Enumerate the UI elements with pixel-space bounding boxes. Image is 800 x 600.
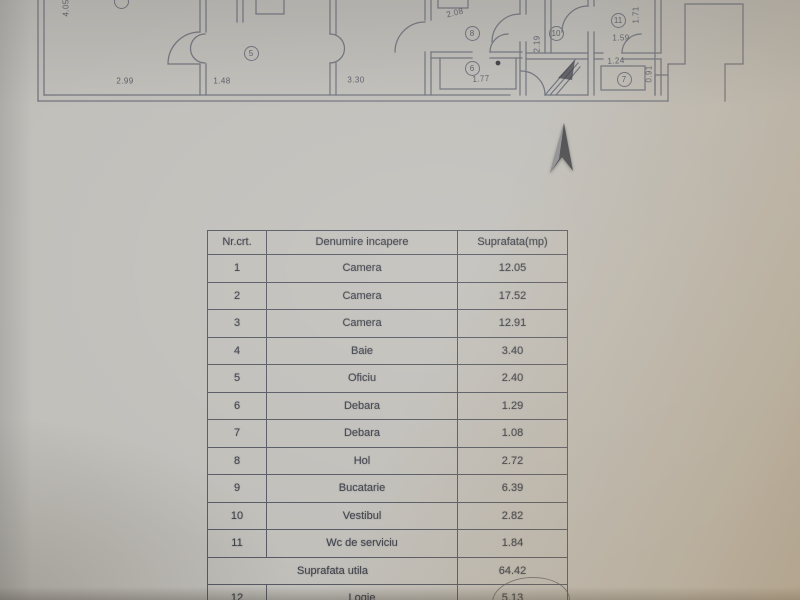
table-cell: 2 <box>208 282 267 310</box>
table-cell: 64.42 <box>458 557 568 585</box>
table-cell: 2.72 <box>458 447 568 475</box>
table-cell: Debara <box>267 392 458 420</box>
room-number <box>114 0 129 9</box>
table-row: 2Camera17.52 <box>208 282 568 310</box>
room-number: 11 <box>611 13 626 28</box>
north-arrow-icon <box>545 118 581 180</box>
table-row: 10Vestibul2.82 <box>208 502 568 530</box>
table-cell: 6.39 <box>458 475 568 503</box>
header-nr: Nr.crt. <box>208 231 267 255</box>
table-row: Suprafata utila64.42 <box>208 557 568 585</box>
table-cell: 12.05 <box>458 255 568 283</box>
table-cell: 7 <box>208 420 267 448</box>
table-row: 1Camera12.05 <box>208 255 568 283</box>
room-number: 7 <box>617 72 632 87</box>
dimension-label: 2.19 <box>533 35 542 52</box>
table-cell: 4 <box>208 337 267 365</box>
table-cell: Baie <box>267 337 458 365</box>
table-cell: 3.40 <box>458 337 568 365</box>
header-name: Denumire incapere <box>267 231 458 255</box>
dimension-label: 1.24 <box>607 56 625 66</box>
table-cell: 3 <box>208 310 267 338</box>
table-cell: Debara <box>267 420 458 448</box>
table-cell: 2.82 <box>458 502 568 530</box>
table-cell: 9 <box>208 475 267 503</box>
table-cell: 6 <box>208 392 267 420</box>
table-row: 12Logie5.13 <box>208 585 568 600</box>
table-row: 9Bucatarie6.39 <box>208 475 568 503</box>
table-cell: 2.40 <box>458 365 568 393</box>
table-cell: Hol <box>267 447 458 475</box>
table-header: Nr.crt. Denumire incapere Suprafata(mp) <box>208 231 568 255</box>
table-cell: Oficiu <box>267 365 458 393</box>
table-cell: 1.08 <box>458 420 568 448</box>
table-cell: Camera <box>267 282 458 310</box>
table-cell: 12.91 <box>458 310 568 338</box>
table-cell: Bucatarie <box>267 475 458 503</box>
table-cell: 1.29 <box>458 392 568 420</box>
dimension-label: 1.59 <box>612 34 629 43</box>
table-cell: 1.84 <box>458 530 568 558</box>
scanned-floor-plan-document: 2.991.483.301.772.081.591.244.051.712.19… <box>0 0 800 600</box>
table-cell: 17.52 <box>458 282 568 310</box>
table-cell: Logie <box>267 585 458 600</box>
table-cell: 10 <box>208 502 267 530</box>
dimension-label: 0.91 <box>645 65 654 82</box>
table-row: 7Debara1.08 <box>208 420 568 448</box>
table-cell: 11 <box>208 530 267 558</box>
floor-plan-drawing <box>0 0 800 200</box>
table-cell: 8 <box>208 447 267 475</box>
dimension-label: 4.05 <box>62 0 71 17</box>
header-area: Suprafata(mp) <box>458 231 568 255</box>
dimension-label: 1.71 <box>632 6 641 23</box>
room-number: 5 <box>244 46 259 61</box>
table-row: 5Oficiu2.40 <box>208 365 568 393</box>
dimension-label: 2.99 <box>116 77 133 86</box>
dimension-label: 3.30 <box>347 76 364 85</box>
table-row: 6Debara1.29 <box>208 392 568 420</box>
table-cell: 5.13 <box>458 585 568 600</box>
dimension-label: 1.48 <box>213 77 230 86</box>
room-number: 8 <box>465 26 480 41</box>
table-cell: 1 <box>208 255 267 283</box>
table-cell: Vestibul <box>267 502 458 530</box>
table-cell: Wc de serviciu <box>267 530 458 558</box>
table-row: 11Wc de serviciu1.84 <box>208 530 568 558</box>
table-cell: 5 <box>208 365 267 393</box>
table-row: 8Hol2.72 <box>208 447 568 475</box>
table-row: 4Baie3.40 <box>208 337 568 365</box>
table-cell: Suprafata utila <box>208 557 458 585</box>
table-cell: Camera <box>267 310 458 338</box>
room-number: 6 <box>465 61 480 76</box>
table-cell: Camera <box>267 255 458 283</box>
table-row: 3Camera12.91 <box>208 310 568 338</box>
room-number: 10 <box>549 26 564 41</box>
room-area-table: Nr.crt. Denumire incapere Suprafata(mp) … <box>207 230 568 600</box>
table-cell: 12 <box>208 585 267 600</box>
